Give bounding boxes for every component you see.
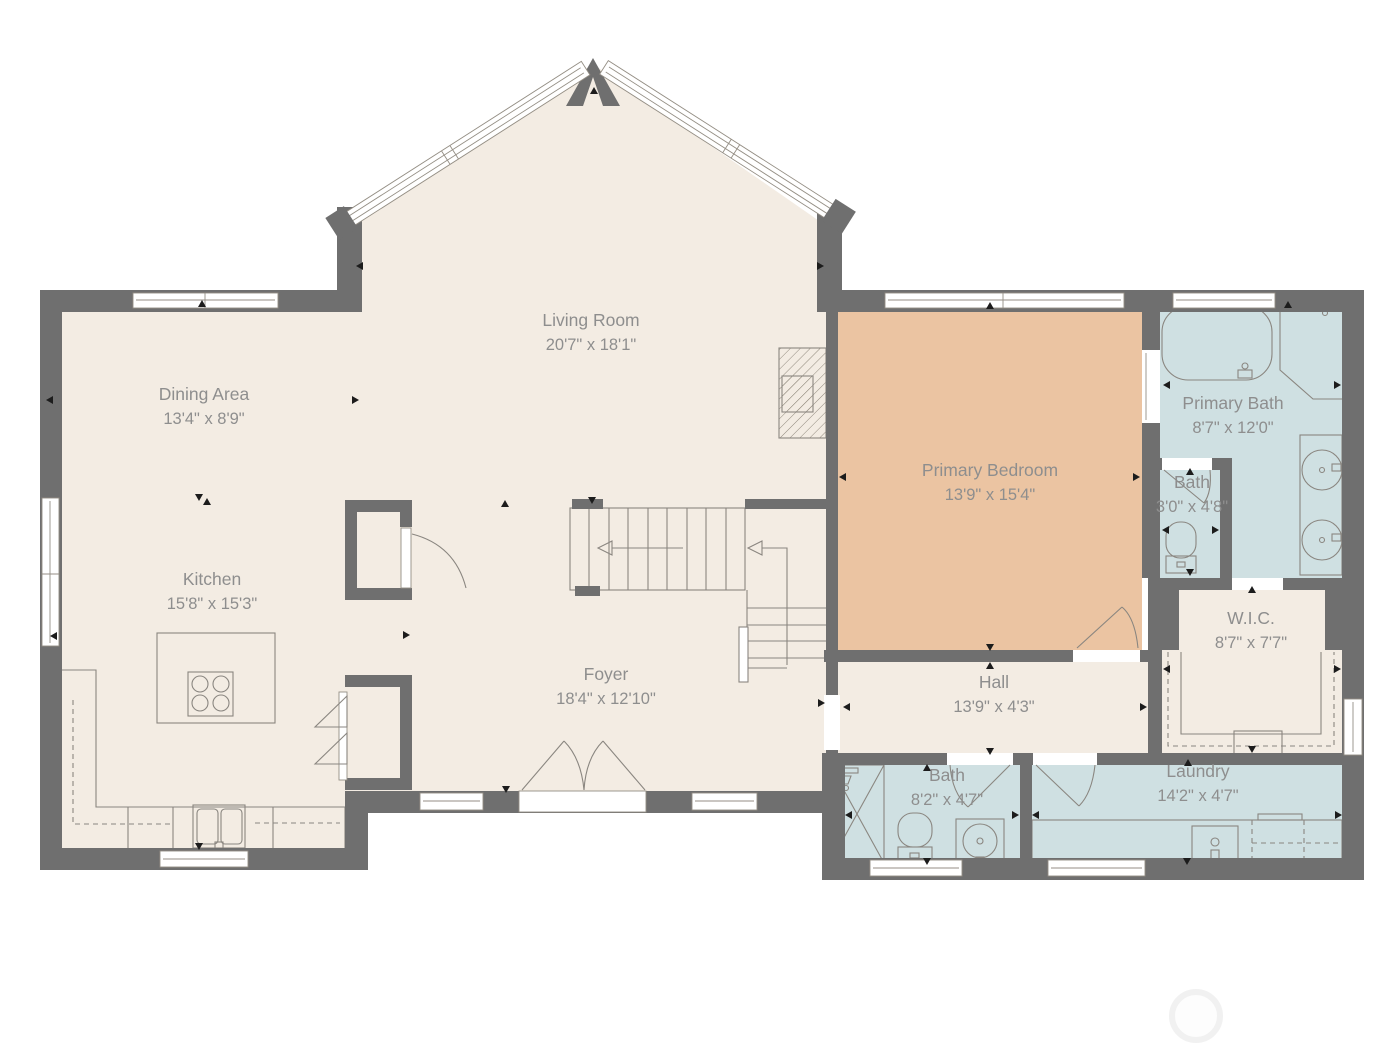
room-name: Living Room bbox=[542, 308, 639, 333]
label-small-bath: Bath 3'0" x 4'8" bbox=[1156, 470, 1228, 520]
room-dims: 8'2" x 4'7" bbox=[911, 788, 983, 813]
window-bath-bottom bbox=[870, 860, 962, 876]
stair-handrail bbox=[739, 627, 748, 682]
label-hall-bath: Bath 8'2" x 4'7" bbox=[911, 763, 983, 813]
window-dining-top bbox=[133, 293, 278, 308]
opening-laundry-door bbox=[1033, 753, 1097, 765]
opening-foyer-hall bbox=[824, 695, 840, 750]
room-dims: 18'4" x 12'10" bbox=[556, 687, 656, 712]
floor-plan-drawing bbox=[0, 0, 1400, 1050]
room-dims: 15'8" x 15'3" bbox=[167, 592, 258, 617]
window-kitchen-bottom bbox=[160, 851, 248, 867]
room-name: Bath bbox=[1156, 470, 1228, 495]
pantry-jamb bbox=[339, 692, 347, 780]
label-foyer: Foyer 18'4" x 12'10" bbox=[556, 662, 656, 712]
room-name: Laundry bbox=[1157, 759, 1238, 784]
label-dining-area: Dining Area 13'4" x 8'9" bbox=[159, 382, 249, 432]
watermark-circle bbox=[1172, 992, 1220, 1040]
room-dims: 3'0" x 4'8" bbox=[1156, 495, 1228, 520]
label-kitchen: Kitchen 15'8" x 15'3" bbox=[167, 567, 258, 617]
window-primary-bath-top bbox=[1173, 293, 1275, 308]
window-laundry-bottom bbox=[1048, 860, 1145, 876]
room-name: Dining Area bbox=[159, 382, 249, 407]
room-name: Primary Bedroom bbox=[922, 458, 1058, 483]
closet-door-panel bbox=[401, 528, 411, 588]
window-foyer-left bbox=[420, 793, 483, 810]
label-primary-bedroom: Primary Bedroom 13'9" x 15'4" bbox=[922, 458, 1058, 508]
room-name: Kitchen bbox=[167, 567, 258, 592]
window-bedroom-top bbox=[885, 293, 1124, 308]
room-name: Hall bbox=[953, 670, 1034, 695]
room-name: Foyer bbox=[556, 662, 656, 687]
opening-wic-door bbox=[1232, 578, 1283, 590]
window-laundry-right bbox=[1344, 699, 1362, 755]
opening-small-bath-door bbox=[1162, 458, 1212, 470]
opening-bedroom-door bbox=[1073, 650, 1140, 662]
label-wic: W.I.C. 8'7" x 7'7" bbox=[1215, 606, 1287, 656]
opening-bedroom-bath bbox=[1142, 350, 1160, 423]
fireplace-icon bbox=[779, 348, 826, 438]
floor-plan: Living Room 20'7" x 18'1" Dining Area 13… bbox=[0, 0, 1400, 1050]
room-dims: 13'9" x 4'3" bbox=[953, 695, 1034, 720]
room-name: W.I.C. bbox=[1215, 606, 1287, 631]
label-laundry: Laundry 14'2" x 4'7" bbox=[1157, 759, 1238, 809]
room-dims: 20'7" x 18'1" bbox=[542, 333, 639, 358]
room-name: Bath bbox=[911, 763, 983, 788]
label-primary-bath: Primary Bath 8'7" x 12'0" bbox=[1182, 391, 1283, 441]
primary-bath-floor bbox=[1150, 312, 1342, 582]
room-dims: 14'2" x 4'7" bbox=[1157, 784, 1238, 809]
room-name: Primary Bath bbox=[1182, 391, 1283, 416]
room-dims: 13'9" x 15'4" bbox=[922, 483, 1058, 508]
entry-door-opening bbox=[519, 791, 646, 812]
room-dims: 13'4" x 8'9" bbox=[159, 407, 249, 432]
window-foyer-right bbox=[692, 793, 757, 810]
room-dims: 8'7" x 7'7" bbox=[1215, 631, 1287, 656]
label-living-room: Living Room 20'7" x 18'1" bbox=[542, 308, 639, 358]
label-hall: Hall 13'9" x 4'3" bbox=[953, 670, 1034, 720]
room-dims: 8'7" x 12'0" bbox=[1182, 416, 1283, 441]
window-left-wall bbox=[42, 498, 59, 646]
